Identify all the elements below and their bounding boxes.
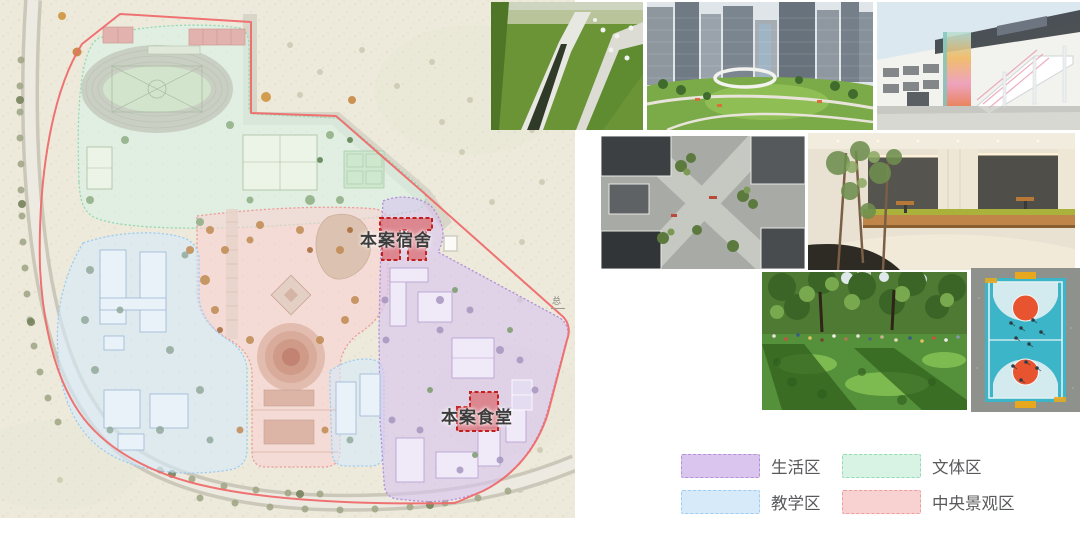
legend-item-sports: 文体区 <box>842 454 982 478</box>
legend-swatch-sports <box>842 454 921 478</box>
legend-item-teaching: 教学区 <box>681 490 821 514</box>
photo-basketball-court-aerial <box>971 268 1080 412</box>
site-plan: 本案宿舍 本案食堂 总 <box>0 0 575 518</box>
slide: 本案宿舍 本案食堂 总 <box>0 0 1080 533</box>
photo-school-building-colorful-stairs <box>877 2 1080 130</box>
photo-courtyard-plaza-aerial <box>601 136 805 269</box>
legend-label-landscape: 中央景观区 <box>932 490 1015 514</box>
dorm-label: 本案宿舍 <box>360 226 432 251</box>
legend-swatch-landscape <box>842 490 921 514</box>
running-track <box>81 45 233 133</box>
canteen-label: 本案食堂 <box>441 403 513 428</box>
legend-item-landscape: 中央景观区 <box>842 490 1015 514</box>
photo-interior-lounge-trees <box>808 133 1075 270</box>
corner-mark: 总 <box>551 294 565 309</box>
photo-urban-park-skyscrapers <box>647 2 873 130</box>
photo-park-lawn-gathering <box>762 272 967 410</box>
legend-label-sports: 文体区 <box>932 454 982 478</box>
amphitheater <box>257 323 325 391</box>
legend-item-living: 生活区 <box>681 454 821 478</box>
site-plan-drawing <box>0 0 575 518</box>
boundary-marker-square <box>444 236 457 251</box>
legend-swatch-teaching <box>681 490 760 514</box>
legend-swatch-living <box>681 454 760 478</box>
legend-label-living: 生活区 <box>771 454 821 478</box>
photo-green-roof-park-aerial <box>491 2 643 130</box>
legend-label-teaching: 教学区 <box>771 490 821 514</box>
